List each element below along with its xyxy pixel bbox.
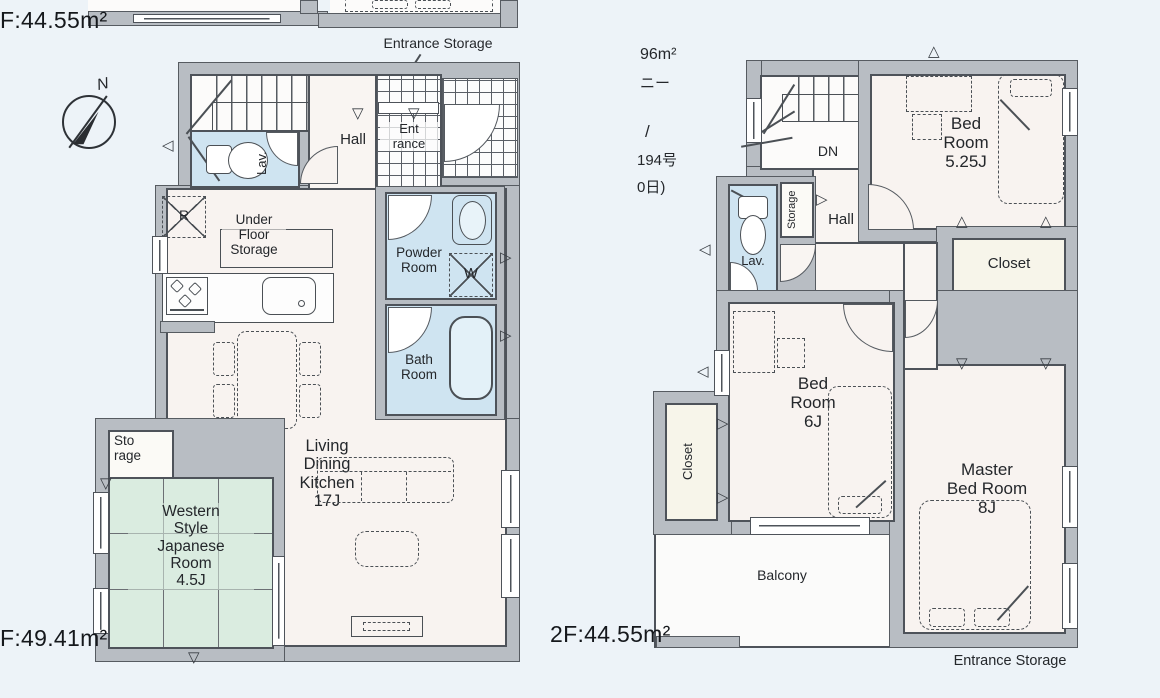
window (93, 492, 109, 554)
f2-fragment-4: 194号 (637, 153, 693, 170)
desk-icon (733, 311, 775, 373)
chair-icon (299, 342, 321, 376)
toilet-bowl-icon (740, 215, 766, 255)
f2-fragment-2: ニー (640, 76, 684, 93)
f1-stair-landing (212, 102, 310, 131)
vent-icon: ▽ (100, 476, 112, 491)
washbasin-bowl-icon (459, 201, 486, 240)
f2-closet1-label: Closet (952, 256, 1066, 273)
f2-dn-label: DN (812, 144, 844, 160)
f2-balcony-label: Balcony (744, 568, 820, 584)
window (1062, 88, 1078, 136)
window (746, 98, 762, 143)
f1-storage-label: Sto rage (114, 433, 170, 463)
entrance-storage-label: Entrance Storage (368, 36, 508, 52)
f1-entrance-label: Ent rance (380, 122, 438, 151)
chair-icon (213, 384, 235, 418)
vent-icon: ▷ (500, 328, 512, 343)
pillow-icon (929, 608, 965, 627)
vent-icon: ◁ (699, 242, 711, 257)
f2-hall-label: Hall (818, 212, 864, 229)
f2-fragment-3: / (645, 122, 665, 141)
vent-icon: △ (928, 44, 940, 59)
f1-washer-label: W (449, 266, 493, 283)
f1-area-label: F:49.41m² (0, 626, 110, 652)
vent-icon: △ (956, 214, 968, 229)
sofa-icon (317, 457, 454, 503)
f1-powder-label: Powder Room (386, 245, 452, 275)
desk-icon (906, 76, 972, 112)
f2-closet3-label: Closet (680, 433, 702, 491)
dining-table-icon (237, 331, 297, 429)
vent-icon: ▷ (717, 490, 729, 505)
f1-fridge-label: R (162, 208, 206, 224)
window (714, 350, 730, 396)
f1-counter-wall-stub (160, 321, 215, 333)
window (1062, 563, 1078, 629)
vent-icon: ◁ (162, 138, 174, 153)
sink-drain-icon (298, 300, 305, 307)
window (501, 470, 520, 528)
chair-icon (777, 338, 805, 368)
window (501, 534, 520, 598)
pillow-icon (838, 496, 882, 514)
top-partial-wall3 (500, 0, 518, 28)
vent-icon: △ (1040, 214, 1052, 229)
vent-icon: ▷ (500, 250, 512, 265)
vent-icon: ▽ (188, 650, 200, 665)
kitchen-sink-icon (262, 277, 316, 315)
vent-icon: ▷ (717, 416, 729, 431)
top-partial-wall2 (318, 13, 506, 28)
coffee-table-icon (355, 531, 419, 567)
floor-plan-page: F:44.55m² Entrance Storage N UP Hall Lav… (0, 0, 1160, 698)
f2-bedroom1-label: Bed Room 5.25J (920, 114, 1012, 171)
sofa-divider-line (361, 472, 362, 501)
vent-icon: ▷ (816, 192, 828, 207)
sofa-divider-line (406, 472, 407, 501)
chair-icon (213, 342, 235, 376)
f1-bath-label: Bath Room (389, 352, 449, 382)
f1-under-floor-storage-label: Under Floor Storage (222, 212, 286, 257)
f2-fragment-1: 96m² (640, 46, 700, 64)
sofa-back-line (320, 471, 451, 472)
upper-floor-area-label: F:44.55m² (0, 8, 110, 34)
pillow-icon (372, 0, 408, 9)
bathtub-icon (449, 316, 493, 400)
pillow-icon (415, 0, 451, 9)
tv-icon (363, 622, 410, 631)
entrance-storage-bottom-label: Entrance Storage (940, 653, 1080, 669)
pillow-icon (1010, 79, 1052, 97)
balcony-window-door (750, 517, 870, 535)
chair-icon (299, 384, 321, 418)
compass-north-label: N (90, 74, 115, 96)
f1-japanese-room-label: Western Style Japanese Room 4.5J (128, 503, 254, 590)
f2-area-label: 2F:44.55m² (550, 622, 680, 648)
vent-icon: ◁ (697, 364, 709, 379)
f1-sliding-screen (272, 556, 285, 646)
f2-storage-label: Storage (786, 185, 808, 235)
vent-icon: ▽ (1040, 356, 1052, 371)
vent-icon: ▽ (956, 356, 968, 371)
top-partial-window (133, 14, 281, 23)
vent-icon: ▽ (408, 106, 420, 121)
stove-base-line (170, 309, 204, 311)
window (152, 236, 168, 274)
vent-icon: ▽ (352, 106, 364, 121)
balcony (654, 528, 900, 648)
f2-fragment-5: 0日) (637, 180, 687, 197)
top-partial-wall-stub (300, 0, 318, 14)
window (1062, 466, 1078, 528)
f2-stair-landing (782, 94, 868, 122)
